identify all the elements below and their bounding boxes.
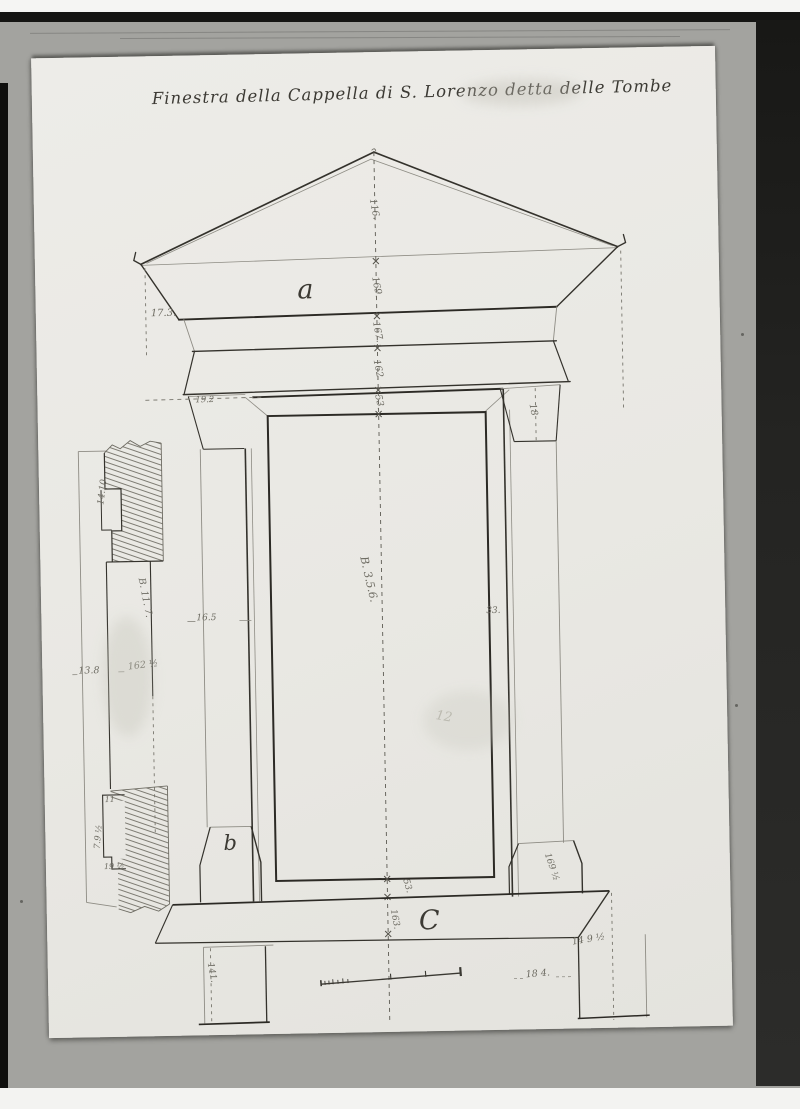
centerline-dim-4: 53. [372, 394, 386, 411]
paper-sheet: Finestra della Cappella di S. Lorenzo de… [31, 46, 733, 1038]
window-frame [244, 389, 518, 902]
photo-border-left [0, 83, 8, 1088]
architectural-drawing: Finestra della Cappella di S. Lorenzo de… [31, 46, 733, 1038]
mount-speck [20, 900, 23, 903]
mount-speck [741, 333, 744, 336]
centerline-dim-6: 163. [388, 909, 402, 931]
dim-base-right: 169 ½ [542, 851, 562, 882]
pediment-label: a [297, 274, 314, 305]
centerline-dim-2: 167. [370, 321, 385, 344]
detail-dim-top: 14.10 [96, 478, 109, 505]
centerline-dim-1: 169. [369, 276, 384, 299]
centerline-dim-0: 116. [367, 198, 382, 221]
photo-of-drawing: { "photo": { "mount_color": "#a3a39f", "… [0, 0, 800, 1109]
dim-shaft-right: 33. [486, 606, 501, 616]
dim-cornice-left: 17.3. [151, 308, 177, 319]
mount-speck [735, 704, 738, 707]
sill-label: C [419, 905, 441, 936]
scale-bar [321, 967, 461, 987]
centerline-dim-5: 53. [400, 878, 414, 895]
dim-sill-right: 14 9 ½ [571, 931, 606, 947]
pilaster-bases [199, 820, 582, 902]
photo-border-right [756, 20, 800, 1086]
dim-shaft-left: 16.5 [196, 613, 216, 623]
dim-aperture-height: B. 3.5.6. [357, 554, 380, 603]
dim-capital-right: 18 [527, 403, 540, 417]
detail-dim-width: 13.8 [78, 665, 99, 676]
detail-dim-bottom: 19 ½ [104, 862, 125, 871]
mount-scratch-line [120, 36, 680, 39]
dim-capital-left: 19.2 [195, 395, 214, 405]
dim-plinth-right: 18 4. [525, 967, 550, 980]
centerline-dim-3: 162. [371, 359, 386, 382]
entablature [182, 307, 570, 395]
base-label: b [223, 831, 237, 855]
plinth-blocks [197, 934, 649, 1025]
detail-dim-step: 11 [105, 795, 115, 804]
mount-scratch-line [30, 29, 730, 34]
detail-dim-lower: 7.9 ½ [92, 824, 105, 849]
film-edge-bottom [0, 1088, 800, 1109]
drawing-title: Finestra della Cappella di S. Lorenzo de… [151, 76, 673, 108]
sill-band [155, 891, 614, 1028]
photo-border-top [0, 12, 800, 22]
detail-dim-side: B. 11. 7. [135, 576, 154, 619]
dim-plinth-left: 141. [205, 962, 219, 984]
film-edge-top [0, 0, 800, 12]
